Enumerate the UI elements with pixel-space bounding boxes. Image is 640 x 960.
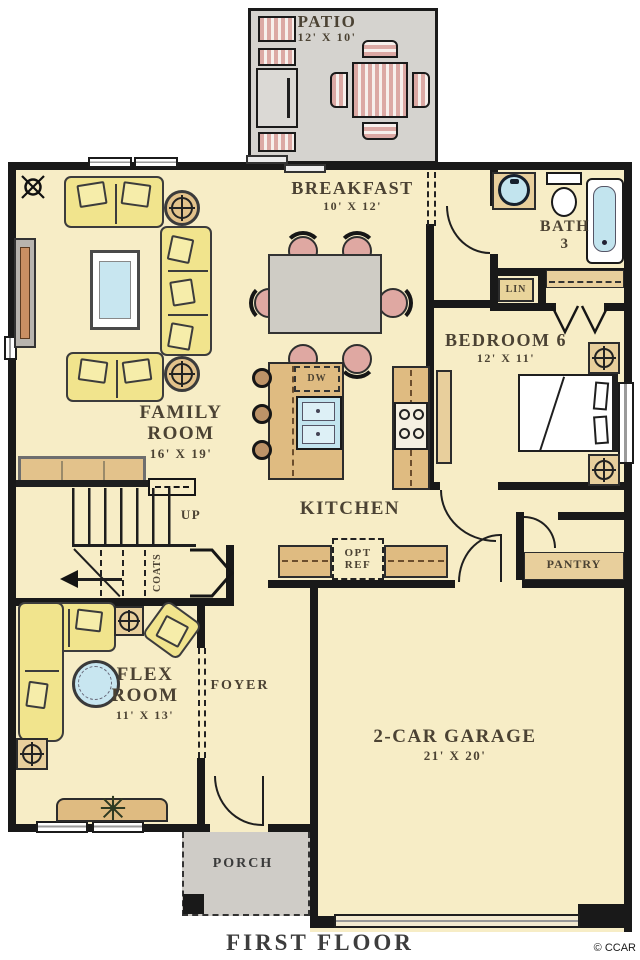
breakfast-dims: 10' X 12'	[290, 200, 415, 213]
dining-chair	[342, 344, 372, 374]
counter-line	[282, 560, 328, 562]
front-door-leaf	[262, 776, 264, 826]
dishwasher: DW	[294, 366, 340, 392]
cased-opening-breakfast	[434, 172, 436, 226]
bath-label-name: BATH	[530, 218, 600, 236]
garage-label: 2-CAR GARAGE	[370, 726, 540, 747]
loveseat	[66, 352, 164, 402]
sliding-door	[246, 155, 288, 164]
wall-pantry-top	[558, 512, 632, 520]
closet-arrow-icon	[188, 546, 234, 600]
family-room-label-line2: ROOM	[116, 423, 246, 444]
opt-ref-box: OPT REF	[332, 538, 384, 580]
sectional-sofa-vertical	[18, 602, 64, 742]
wall-garage-left	[310, 580, 318, 924]
bath-sink	[498, 174, 530, 206]
coats-dash	[122, 550, 124, 596]
dresser	[436, 370, 452, 464]
bar-stool	[252, 368, 272, 388]
garage-dims: 21' X 20'	[370, 749, 540, 764]
lamp-icon	[119, 611, 139, 631]
coffee-table	[90, 250, 140, 330]
flex-room-label: FLEX ROOM 11' X 13'	[90, 664, 200, 722]
grill-handle	[287, 78, 290, 118]
coats-dash	[144, 550, 146, 596]
stairs-landing-line	[72, 544, 196, 547]
media-console	[14, 238, 36, 348]
ceiling-light-icon	[18, 172, 48, 202]
porch-label: PORCH	[188, 856, 298, 872]
family-room-label: FAMILY ROOM 16' X 19'	[116, 402, 246, 461]
grill-shelf	[258, 48, 296, 66]
floor-title: FIRST FLOOR	[200, 930, 440, 956]
toilet-bowl	[551, 187, 577, 217]
counter-line	[388, 560, 444, 562]
bath-label: BATH 3	[530, 218, 600, 253]
closet-shelf-line	[549, 281, 621, 283]
family-room-dims: 16' X 19'	[116, 447, 246, 462]
opt-ref-line1: OPT	[344, 547, 371, 559]
foyer-label: FOYER	[205, 678, 275, 694]
grill-shelf	[258, 132, 296, 152]
bed	[518, 374, 618, 452]
garage-door	[334, 914, 580, 928]
flex-room-dims: 11' X 13'	[90, 709, 200, 722]
bar-stool	[252, 404, 272, 424]
dining-chair	[378, 288, 408, 318]
flex-room-label-line1: FLEX	[90, 664, 200, 685]
wall-kitchen-garage-b	[522, 580, 632, 588]
opt-ref-line2: REF	[345, 559, 372, 571]
flex-room-label-line2: ROOM	[90, 685, 200, 706]
nightstand	[588, 342, 620, 374]
patio-chair	[362, 122, 398, 140]
patio-dims: 12' X 10'	[252, 31, 402, 44]
nightstand	[588, 454, 620, 486]
end-table	[164, 356, 200, 392]
lamp-icon	[171, 363, 193, 385]
bedroom-label: BEDROOM 6	[426, 330, 586, 350]
cased-opening-breakfast	[427, 172, 429, 226]
patio-label: PATIO	[252, 12, 402, 31]
bar-stool	[252, 440, 272, 460]
closet-shelf	[546, 270, 624, 288]
sliding-door	[284, 164, 326, 173]
window-bedroom	[618, 382, 634, 464]
lamp-icon	[594, 460, 615, 481]
window	[36, 821, 88, 833]
stairs-direction-line	[78, 578, 122, 581]
toilet-tank	[546, 172, 582, 185]
patio-chair	[330, 72, 348, 108]
wall-kitchen-garage-a	[268, 580, 455, 588]
lamp-icon	[594, 348, 615, 369]
linen-closet: LIN	[498, 278, 534, 302]
grill-body	[256, 68, 298, 128]
garage-entry-door-leaf	[500, 534, 502, 582]
floor-plan: PATIO 12' X 10'	[0, 0, 640, 960]
lamp-icon	[171, 197, 193, 219]
wall-right	[624, 162, 632, 932]
wall-closet-bottom-a	[490, 303, 556, 311]
patio-chair	[412, 72, 430, 108]
sofa	[160, 226, 212, 356]
kitchen-sink	[296, 396, 342, 450]
kitchen-label: KITCHEN	[285, 498, 415, 519]
garage-floor	[310, 598, 632, 932]
copyright-credit: © CCAR	[578, 942, 636, 954]
wall-hall-bottom	[426, 300, 498, 308]
window	[134, 157, 178, 168]
loveseat	[64, 176, 164, 228]
lamp-icon	[22, 744, 43, 765]
stairs-up-label: UP	[176, 508, 206, 523]
stairs-direction-arrow-icon	[60, 570, 78, 588]
stairs-edge	[16, 480, 150, 487]
stairs-treads	[72, 488, 178, 544]
coats-label: COATS	[152, 548, 168, 598]
dishwasher-label: DW	[307, 373, 326, 384]
bath-label-number: 3	[530, 236, 600, 253]
bedroom-dims: 12' X 11'	[426, 352, 586, 365]
family-room-label-line1: FAMILY	[116, 402, 246, 423]
window	[88, 157, 132, 168]
cooktop	[394, 402, 428, 450]
breakfast-label: BREAKFAST	[290, 178, 415, 198]
porch-post	[183, 894, 204, 914]
window	[92, 821, 144, 833]
linen-label: LIN	[506, 284, 527, 295]
plant-icon	[99, 794, 127, 822]
breakfast-table	[268, 254, 382, 334]
pantry-label: PANTRY	[522, 558, 626, 571]
wall-garage-notch	[578, 904, 632, 924]
end-table	[164, 190, 200, 226]
wall-foyer-flex-b	[197, 758, 205, 824]
coats-dash	[100, 550, 102, 596]
patio-table	[352, 62, 408, 118]
flex-lamp-table	[114, 606, 144, 636]
cased-opening-foyer	[204, 648, 206, 758]
flex-lamp-table	[16, 738, 48, 770]
